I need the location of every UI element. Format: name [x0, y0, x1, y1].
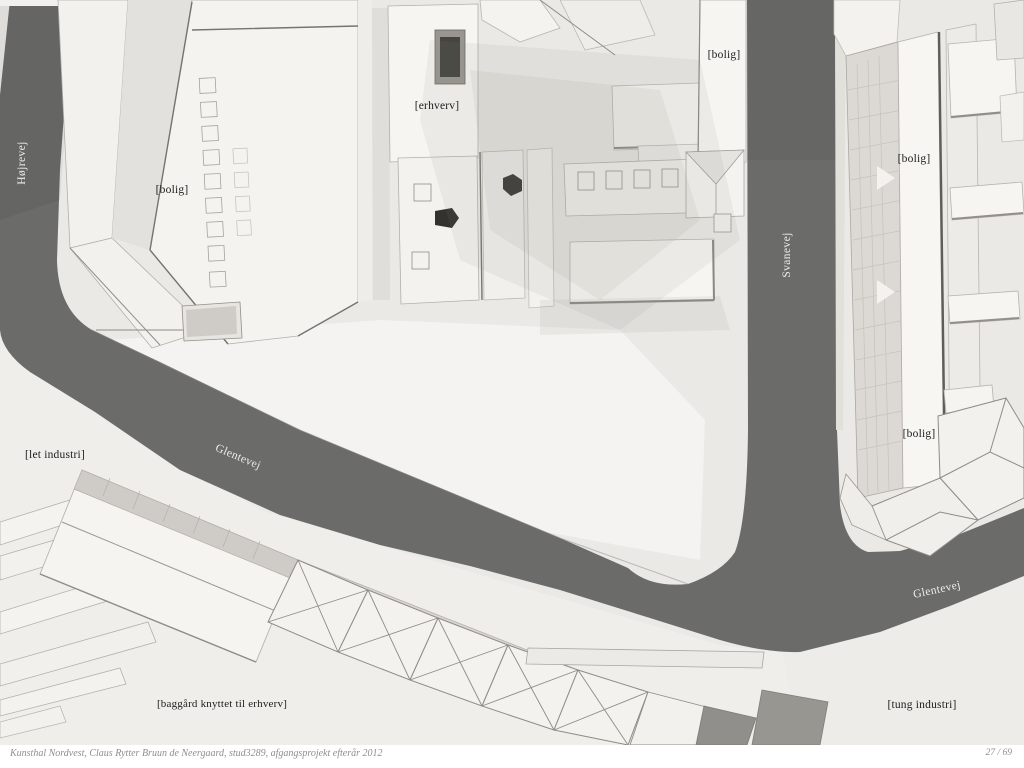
- zone-label-bolig-ne: [bolig]: [898, 153, 931, 165]
- nw-sidewalk: [358, 0, 372, 302]
- ne-slab-roof: [898, 32, 944, 488]
- road-shade-svanevej: [746, 0, 836, 160]
- page-footer: Kunsthal Nordvest, Claus Rytter Bruun de…: [0, 745, 1024, 768]
- street-label-svanevej: Svanevej: [781, 232, 793, 277]
- zone-label-bolig-n: [bolig]: [708, 49, 741, 61]
- zone-label-let-industri: [let industri]: [25, 449, 85, 461]
- zone-label-bolig-se: [bolig]: [903, 428, 936, 440]
- sw-sliver-bar: [526, 648, 764, 668]
- document-page: Højrevej Svanevej Glentevej Glentevej [b…: [0, 0, 1024, 768]
- model-photo-drawing: [0, 0, 1024, 745]
- page-number: 27 / 69: [986, 748, 1012, 758]
- street-label-hojrevej: Højrevej: [16, 141, 28, 184]
- zone-label-bolig-nw: [bolig]: [156, 184, 189, 196]
- zone-label-tung-industri: [tung industri]: [887, 699, 956, 711]
- footer-caption: Kunsthal Nordvest, Claus Rytter Bruun de…: [10, 748, 383, 759]
- erhverv-shadow-strip: [372, 8, 390, 300]
- zone-label-erhverv: [erhverv]: [415, 100, 460, 112]
- nw-tip-box-inner: [186, 306, 237, 337]
- zone-label-baggard: [baggård knyttet til erhverv]: [157, 698, 287, 710]
- ne-corner-box: [994, 0, 1024, 60]
- ne-corner-bar: [1000, 92, 1024, 142]
- model-photo: Højrevej Svanevej Glentevej Glentevej [b…: [0, 0, 1024, 745]
